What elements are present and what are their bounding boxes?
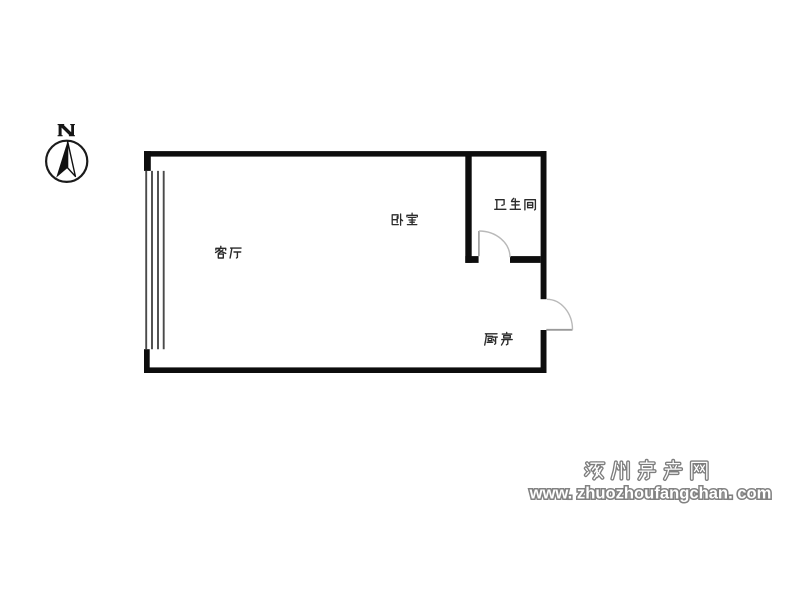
svg-text:www. zhuozhoufangchan. com: www. zhuozhoufangchan. com — [529, 484, 772, 503]
